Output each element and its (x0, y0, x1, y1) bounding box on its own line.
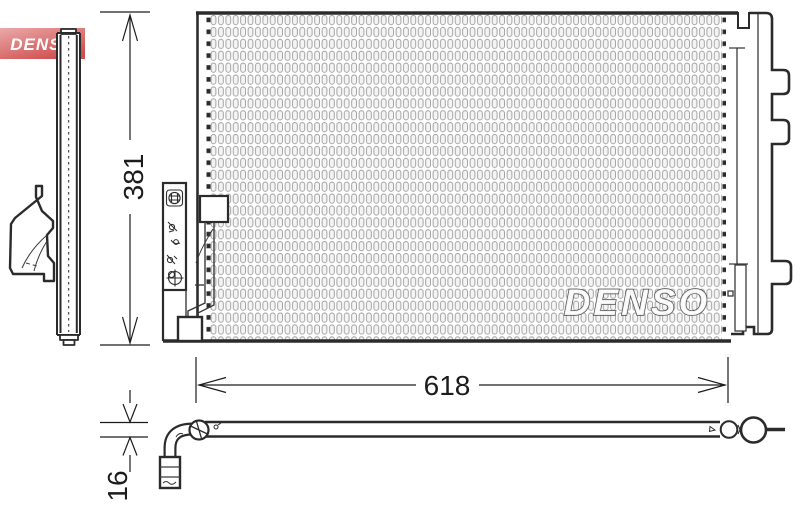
dim-depth-label: 16 (102, 470, 133, 501)
flow-triangle-icon (710, 427, 716, 432)
tank-top-notch (738, 12, 749, 28)
bottom-fitting-block (178, 317, 202, 341)
tank-internal-pipe (728, 48, 748, 331)
drawing-canvas: DENSO 381 DENSO (0, 0, 800, 519)
core-serration-right (721, 16, 726, 338)
side-slab-bottom-cap-2 (64, 340, 75, 345)
core-serration-left (206, 16, 211, 338)
front-view: DENSO (163, 12, 791, 341)
dimension-16 (100, 390, 148, 472)
denso-watermark: DENSO (564, 282, 711, 323)
drier-small-circle (721, 421, 738, 438)
drier-end (710, 418, 786, 443)
slab-lines (205, 422, 720, 437)
top-view (160, 418, 785, 489)
side-view (10, 29, 80, 345)
dim-width-label: 618 (424, 370, 471, 401)
drier-large-circle (741, 418, 766, 443)
small-port-mark (214, 423, 221, 429)
side-bracket (10, 186, 54, 281)
inlet-elbow (170, 421, 221, 458)
connector-block (160, 457, 180, 488)
arrow-down-icon (123, 404, 137, 422)
condenser-drawing: DENSO 381 DENSO (0, 0, 800, 519)
inlet-fitting-block (200, 196, 228, 222)
arrow-up-icon (123, 438, 137, 456)
dim-height-label: 381 (118, 154, 149, 201)
